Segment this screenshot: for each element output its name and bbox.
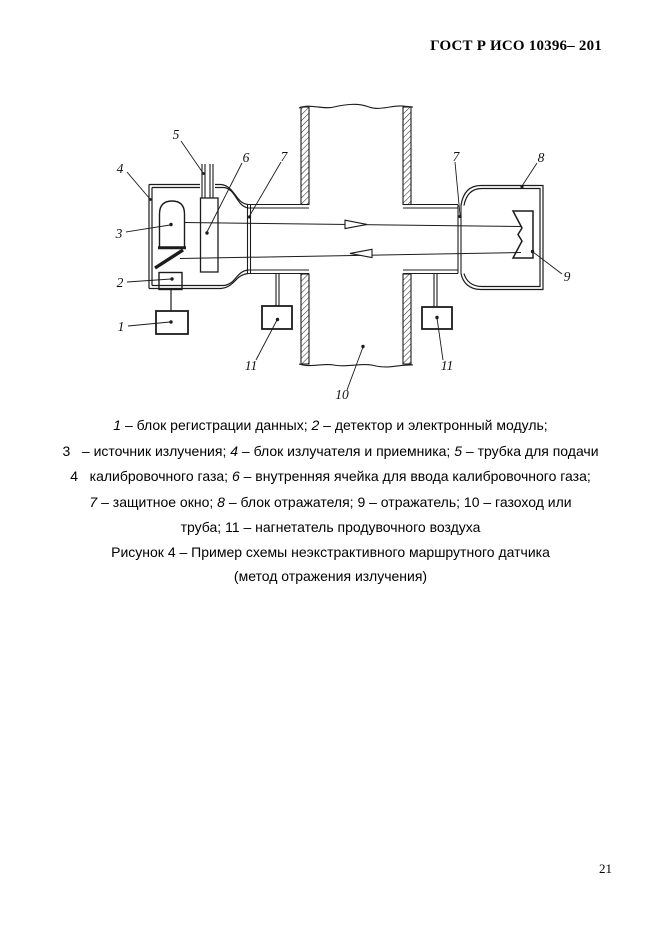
beam-arrow-left (350, 249, 372, 257)
figure-diagram: 1 2 3 4 5 6 7 7 8 9 10 11 11 (0, 0, 661, 410)
figure-legend: 1 – блок регистрации данных; 2 – детекто… (40, 413, 621, 541)
figure-label-10: 10 (335, 387, 349, 402)
figure-label-8: 8 (538, 150, 545, 165)
leader-lines (126, 141, 562, 390)
figure-label-7-right: 7 (453, 149, 461, 164)
optical-beams (180, 220, 521, 258)
page-number: 21 (599, 861, 612, 877)
figure-label-2: 2 (117, 275, 124, 290)
legend-line-4: 7 – защитное окно; 8 – блок отражателя; … (40, 490, 621, 516)
document-page: ГОСТ Р ИСО 10396– 201 (0, 0, 661, 936)
legend-line-3: 4 калибровочного газа; 6 – внутренняя яч… (40, 464, 621, 490)
legend-line-2: 3 – источник излучения; 4 – блок излучат… (40, 439, 621, 465)
figure-labels: 1 2 3 4 5 6 7 7 8 9 10 11 11 (115, 127, 571, 402)
left-tube (248, 205, 310, 274)
reflector (513, 211, 533, 258)
beam-splitter-mirror (155, 250, 183, 268)
figure-label-6: 6 (243, 150, 250, 165)
calibration-cell (201, 198, 219, 272)
figure-caption-title: Рисунок 4 – Пример схемы неэкстрактивног… (40, 540, 621, 564)
figure-label-4: 4 (117, 161, 124, 176)
figure-label-11-left: 11 (245, 358, 258, 373)
right-tube (403, 205, 461, 274)
figure-label-7-left: 7 (281, 149, 289, 164)
figure-label-5: 5 (173, 127, 180, 142)
figure-label-1: 1 (118, 319, 125, 334)
figure-label-11-right: 11 (441, 358, 454, 373)
figure-caption: Рисунок 4 – Пример схемы неэкстрактивног… (40, 540, 621, 588)
figure-label-3: 3 (115, 226, 123, 241)
duct-walls (299, 104, 413, 367)
gas-supply-tubes (202, 164, 213, 198)
beam-arrow-right (345, 220, 367, 228)
legend-line-1: 1 – блок регистрации данных; 2 – детекто… (40, 413, 621, 439)
figure-label-9: 9 (564, 269, 571, 284)
legend-line-5: труба; 11 – нагнетатель продувочного воз… (40, 515, 621, 541)
break-line-top (299, 104, 413, 108)
figure-caption-subtitle: (метод отражения излучения) (40, 564, 621, 588)
